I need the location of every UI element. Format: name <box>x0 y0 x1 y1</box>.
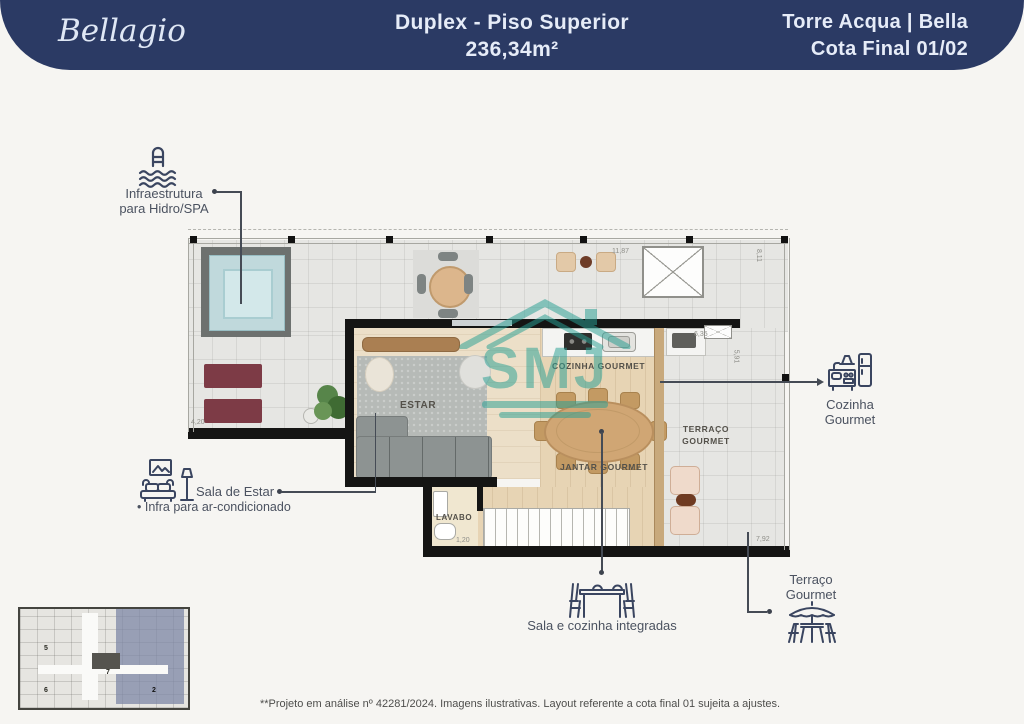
skylight-shaft <box>642 246 704 298</box>
dimension-label: 8,11 <box>755 249 762 262</box>
armchair-table <box>676 494 696 506</box>
terraco-divider <box>654 328 664 548</box>
column <box>686 236 693 243</box>
leader-line <box>601 432 603 572</box>
callout-cozinha: Cozinha Gourmet <box>812 397 888 427</box>
tower-name: Torre Acqua | Bella <box>782 9 968 36</box>
plan-area: 236,34m² <box>262 36 762 63</box>
roof-projection-line <box>188 229 788 230</box>
cota-final: Cota Final 01/02 <box>782 36 968 63</box>
leader-line <box>240 191 242 304</box>
patio-umbrella-icon <box>784 600 840 646</box>
terrace-chair <box>438 252 458 261</box>
dining-table-icon <box>563 581 641 621</box>
column <box>782 374 789 381</box>
railing-left <box>188 238 194 432</box>
room-label-terraco-2: GOURMET <box>676 436 736 446</box>
duct-box <box>704 325 732 339</box>
terrace-chair <box>417 274 426 294</box>
dimension-label: 11,87 <box>612 248 629 255</box>
terrace-chair <box>464 274 473 294</box>
plan-title-line1: Duplex - Piso Superior <box>262 9 762 36</box>
column <box>486 236 493 243</box>
watermark-caption-bar <box>499 412 591 418</box>
key-plan-unit: 2 <box>152 687 156 694</box>
armchair <box>670 466 700 495</box>
header-banner: Bellagio Duplex - Piso Superior 236,34m²… <box>0 0 1024 70</box>
wall-left <box>345 319 354 487</box>
leader-line <box>375 413 377 492</box>
callout-hidro-line2: para Hidro/SPA <box>116 201 212 216</box>
sofa-lamp-icon <box>138 458 196 506</box>
pool-ladder-icon <box>136 146 182 190</box>
callout-terraco: Terraço Gourmet <box>768 572 854 602</box>
column <box>288 236 295 243</box>
wall-lavabo-right <box>477 487 483 511</box>
key-plan-unit: 6 <box>44 687 48 694</box>
key-plan-highlight <box>116 609 184 704</box>
callout-hidro: Infraestrutura para Hidro/SPA <box>116 186 212 216</box>
brand-logo: Bellagio <box>58 13 186 49</box>
column <box>190 236 197 243</box>
lavabo-toilet <box>434 523 456 540</box>
kitchen-icon <box>826 350 874 396</box>
callout-terraco-line1: Terraço <box>768 572 854 587</box>
leader-line <box>660 381 818 383</box>
terrace-chair <box>596 252 616 272</box>
key-plan-core <box>92 653 120 669</box>
key-plan-unit: 5 <box>44 645 48 652</box>
staircase <box>483 508 630 550</box>
room-label-jantar: JANTAR GOURMET <box>560 462 648 472</box>
callout-cozinha-line2: Gourmet <box>812 412 888 427</box>
column <box>386 236 393 243</box>
dimension-label: 1,20 <box>456 537 470 544</box>
leader-line <box>747 532 749 612</box>
terrace-side-table <box>580 256 592 268</box>
key-plan-unit: 7 <box>106 669 110 676</box>
column <box>580 236 587 243</box>
sofa <box>356 436 492 479</box>
lounger-mat <box>204 364 262 388</box>
key-plan: 5 6 7 2 <box>18 607 190 710</box>
railing-right <box>784 238 790 550</box>
floor-plan-sheet: Bellagio Duplex - Piso Superior 236,34m²… <box>0 0 1024 724</box>
plant <box>314 402 332 420</box>
wall-estar-bottom <box>345 477 497 487</box>
disclaimer-text: **Projeto em análise nº 42281/2024. Imag… <box>30 698 1010 710</box>
room-label-terraco-1: TERRAÇO <box>676 424 736 434</box>
terrace-chair <box>556 252 576 272</box>
room-label-estar: ESTAR <box>400 400 436 411</box>
grill <box>672 333 696 348</box>
armchair <box>670 506 700 535</box>
spa-inner <box>223 269 273 319</box>
column <box>781 236 788 243</box>
leader-line <box>281 491 376 493</box>
watermark-text: SMJ <box>445 341 645 397</box>
plan-title: Duplex - Piso Superior 236,34m² <box>262 9 762 63</box>
leader-line <box>747 611 767 613</box>
callout-hidro-line1: Infraestrutura <box>116 186 212 201</box>
wall-terrace-bottom <box>188 428 354 439</box>
wall-lavabo-left <box>423 483 432 555</box>
callout-integradas: Sala e cozinha integradas <box>522 618 682 633</box>
leader-dot <box>599 570 604 575</box>
dimension-label: 5,91 <box>732 350 739 364</box>
lounger-mat <box>204 399 262 423</box>
room-label-lavabo: LAVABO <box>436 513 472 522</box>
callout-sala-label: Sala de Estar <box>196 484 274 499</box>
watermark-logo: SMJ <box>445 297 645 418</box>
leader-arrow <box>817 378 824 386</box>
callout-sala-bullet: • Infra para ar-condicionado <box>137 500 291 515</box>
dimension-label: 7,92 <box>756 536 770 543</box>
tower-info: Torre Acqua | Bella Cota Final 01/02 <box>782 9 968 63</box>
leader-dot <box>767 609 772 614</box>
dimension-label: 6,35 <box>694 331 708 338</box>
dimension-label: 4,20 <box>191 419 205 426</box>
callout-cozinha-line1: Cozinha <box>812 397 888 412</box>
wall-bottom <box>423 546 790 557</box>
watermark-caption-bar <box>482 401 608 408</box>
leader-line <box>216 191 242 193</box>
pouf <box>365 357 394 392</box>
